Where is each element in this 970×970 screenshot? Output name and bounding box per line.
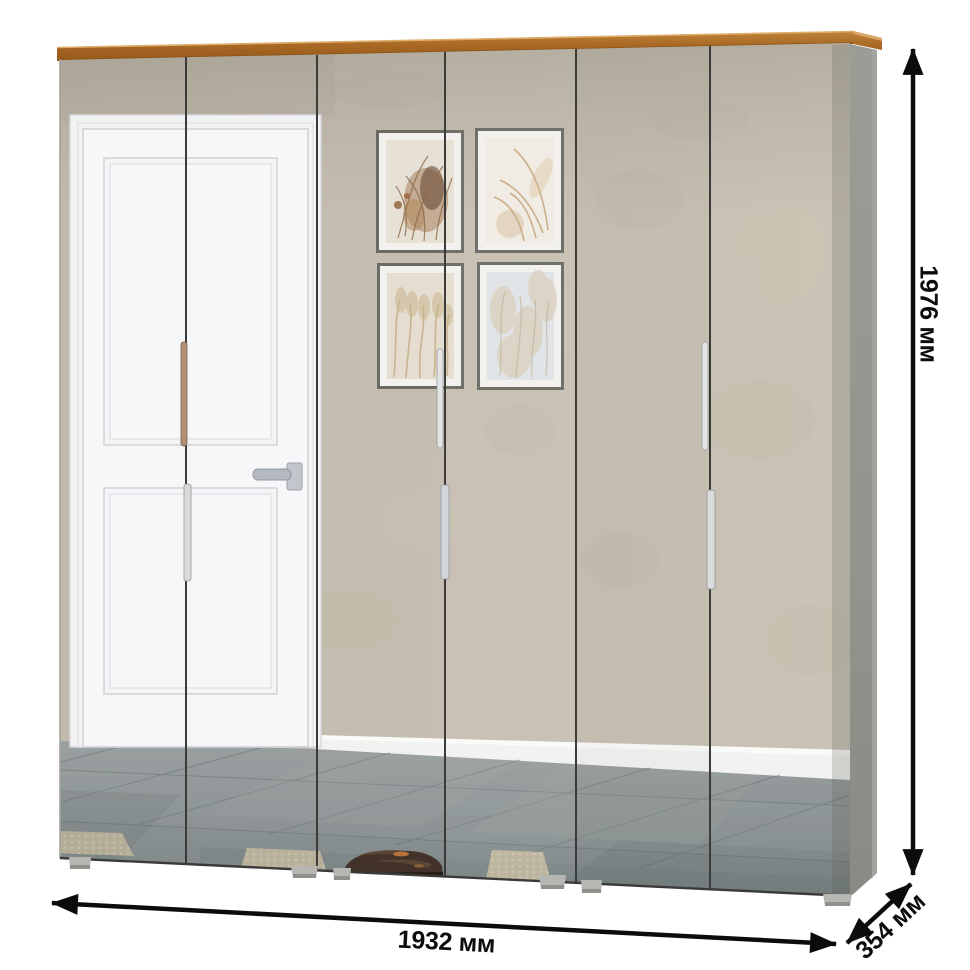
svg-text:1932 мм: 1932 мм — [397, 925, 496, 958]
svg-text:1976 мм: 1976 мм — [914, 265, 942, 362]
